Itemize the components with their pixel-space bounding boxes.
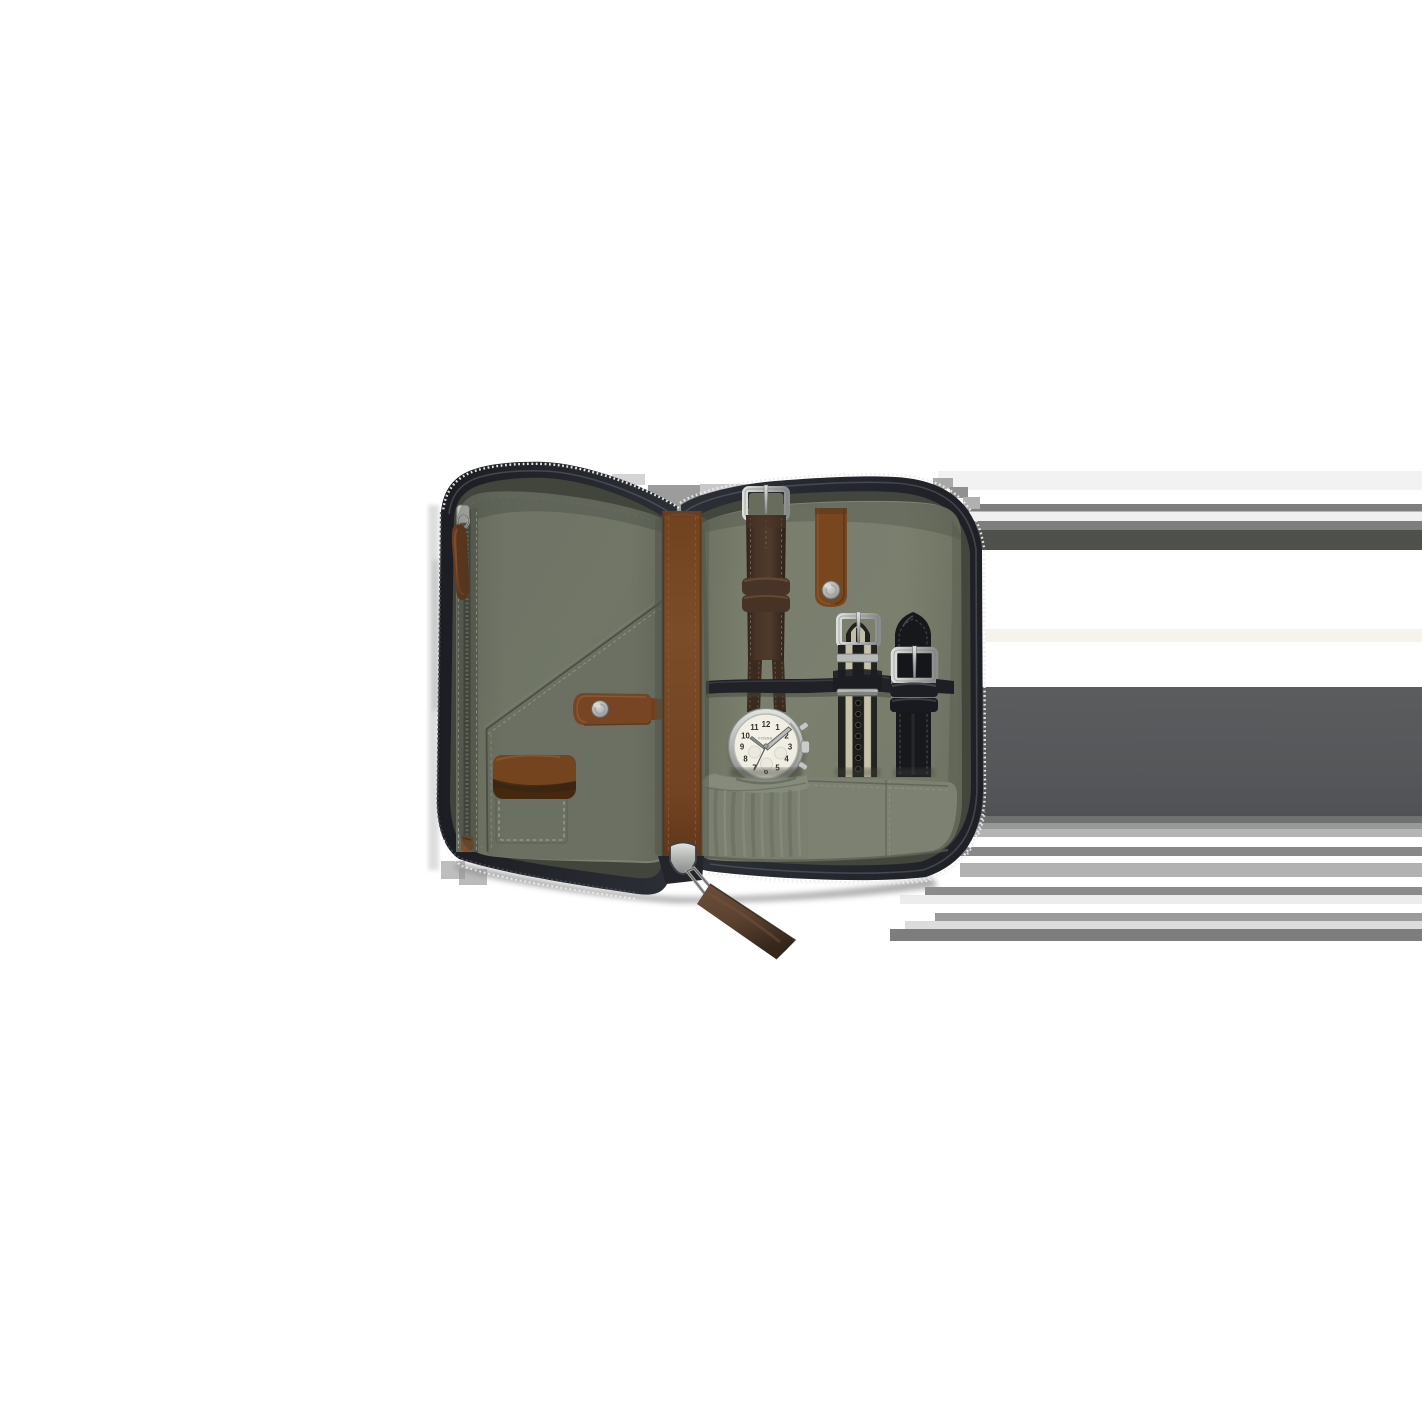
svg-text:9: 9 xyxy=(740,743,745,752)
svg-text:FOSSIL: FOSSIL xyxy=(758,737,773,741)
svg-text:10: 10 xyxy=(741,732,750,741)
svg-text:8: 8 xyxy=(743,755,748,764)
svg-text:3: 3 xyxy=(788,743,793,752)
svg-text:1: 1 xyxy=(775,723,780,732)
svg-text:12: 12 xyxy=(762,720,771,729)
svg-text:11: 11 xyxy=(750,723,759,732)
